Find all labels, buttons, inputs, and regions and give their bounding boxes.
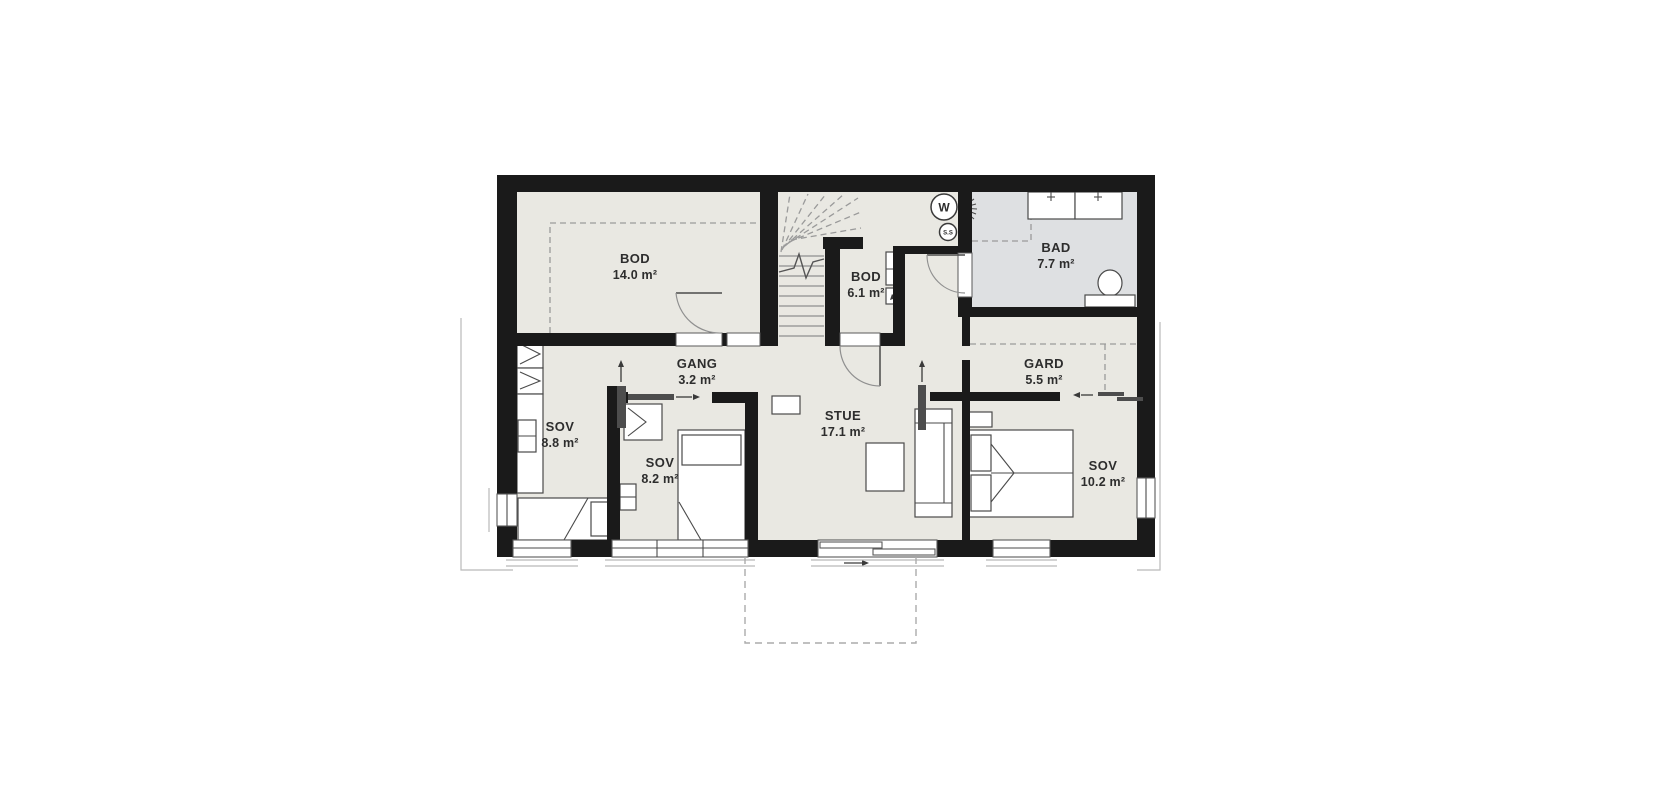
interior-wall bbox=[825, 237, 840, 346]
interior-wall bbox=[517, 333, 676, 346]
interior-wall bbox=[958, 192, 972, 253]
room-name: BAD bbox=[1041, 240, 1070, 255]
room-name: SOV bbox=[1089, 458, 1118, 473]
terrace-outline bbox=[745, 557, 916, 643]
room-name: SOV bbox=[546, 419, 575, 434]
interior-wall bbox=[962, 317, 970, 346]
room-area: 8.2 m² bbox=[641, 472, 678, 486]
room-name: GANG bbox=[677, 356, 718, 371]
washing-machine-symbol: W bbox=[931, 194, 957, 220]
interior-wall bbox=[823, 237, 863, 249]
sliding-glass-door bbox=[818, 540, 937, 566]
room-name: GARD bbox=[1024, 356, 1064, 371]
sideboard bbox=[772, 396, 800, 414]
floor-plan-page: W S.S BOD 14.0 m² BOD 6.1 m² BAD 7.7 m² … bbox=[0, 0, 1670, 800]
single-bed bbox=[678, 430, 745, 540]
window bbox=[1137, 478, 1155, 518]
single-bed bbox=[518, 498, 618, 540]
interior-wall bbox=[962, 360, 970, 540]
room-area: 3.2 m² bbox=[678, 373, 715, 387]
exterior-wall bbox=[937, 540, 993, 557]
interior-wall bbox=[893, 249, 905, 333]
exterior-wall bbox=[497, 540, 513, 557]
ss-label: S.S bbox=[943, 231, 953, 237]
exterior-wall bbox=[497, 192, 517, 494]
window bbox=[993, 540, 1050, 557]
room-area: 7.7 m² bbox=[1037, 257, 1074, 271]
interior-wall bbox=[760, 192, 778, 346]
ss-symbol: S.S bbox=[940, 224, 957, 241]
interior-wall bbox=[880, 333, 905, 346]
window bbox=[497, 494, 517, 526]
room-name: BOD bbox=[851, 269, 881, 284]
interior-wall bbox=[958, 307, 1155, 317]
room-name: STUE bbox=[825, 408, 861, 423]
exterior-wall bbox=[748, 540, 818, 557]
window bbox=[612, 540, 748, 557]
vanity-double-sink bbox=[1028, 192, 1122, 219]
interior-wall bbox=[893, 246, 958, 254]
exterior-wall bbox=[1137, 192, 1155, 478]
interior-wall bbox=[930, 392, 1060, 401]
room-area: 5.5 m² bbox=[1025, 373, 1062, 387]
room-area: 10.2 m² bbox=[1081, 475, 1125, 489]
room-area: 8.8 m² bbox=[541, 436, 578, 450]
floor-plan-drawing: W S.S BOD 14.0 m² BOD 6.1 m² BAD 7.7 m² … bbox=[0, 0, 1670, 800]
washing-machine-label: W bbox=[938, 201, 950, 215]
room-name: BOD bbox=[620, 251, 650, 266]
coffee-table bbox=[866, 443, 904, 491]
room-area: 14.0 m² bbox=[613, 268, 657, 282]
exterior-wall bbox=[497, 175, 1155, 192]
exterior-wall bbox=[571, 540, 612, 557]
room-area: 6.1 m² bbox=[847, 286, 884, 300]
wardrobe bbox=[517, 340, 543, 493]
room-name: SOV bbox=[646, 455, 675, 470]
exterior-wall bbox=[1050, 540, 1155, 557]
window bbox=[513, 540, 571, 557]
room-area: 17.1 m² bbox=[821, 425, 865, 439]
interior-wall bbox=[722, 333, 727, 346]
interior-wall bbox=[745, 392, 758, 540]
